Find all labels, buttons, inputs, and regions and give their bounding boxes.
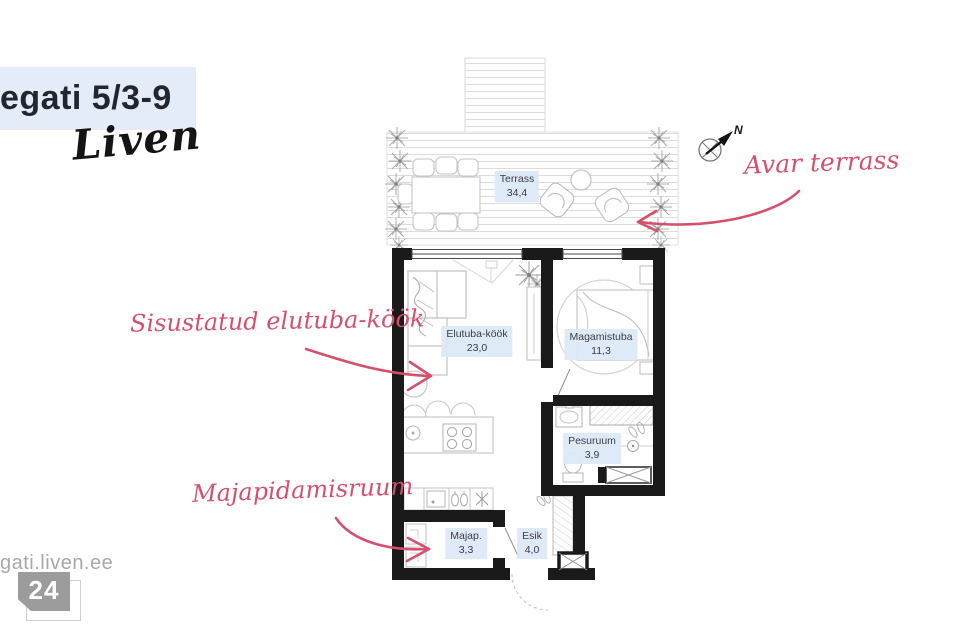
badge-square: 24 <box>18 572 70 611</box>
room-name: Pesuruum <box>568 435 616 449</box>
kitchen-counter <box>404 488 493 510</box>
compass-north-label: N <box>734 123 743 137</box>
room-label-majapidamisruum: Majap. 3,3 <box>445 528 487 559</box>
kitchen-island <box>400 401 493 453</box>
shaft-box <box>559 553 587 570</box>
project-title: egati 5/3-9 <box>0 79 172 118</box>
room-label-magamistuba: Magamistuba 11,3 <box>564 329 637 360</box>
annotation-living-room: Sisustatud elutuba-köök <box>130 304 425 337</box>
room-label-pesuruum: Pesuruum 3,9 <box>563 433 621 464</box>
room-area: 3,9 <box>568 449 616 463</box>
windows <box>412 250 622 259</box>
room-area: 3,3 <box>450 544 482 558</box>
room-name: Elutuba-köök <box>446 328 507 342</box>
room-name: Terrass <box>500 173 534 187</box>
slide-canvas: N egati 5/3-9 Liven Avar terrass Sisusta… <box>0 0 960 640</box>
room-area: 23,0 <box>446 342 507 356</box>
room-name: Esik <box>522 530 542 544</box>
compass-icon: N <box>699 123 743 161</box>
room-area: 11,3 <box>569 345 632 359</box>
room-name: Magamistuba <box>569 331 632 345</box>
room-area: 34,4 <box>500 187 534 201</box>
room-label-terrass: Terrass 34,4 <box>495 171 539 202</box>
portal-badge: 24 <box>18 572 84 624</box>
room-label-elutuba: Elutuba-köök 23,0 <box>441 326 512 357</box>
shelf-cabinet <box>527 287 541 360</box>
annotation-terrace: Avar terrass <box>744 145 900 179</box>
badge-number: 24 <box>29 575 60 608</box>
room-label-esik: Esik 4,0 <box>517 528 547 559</box>
room-name: Majap. <box>450 530 482 544</box>
room-area: 4,0 <box>522 544 542 558</box>
